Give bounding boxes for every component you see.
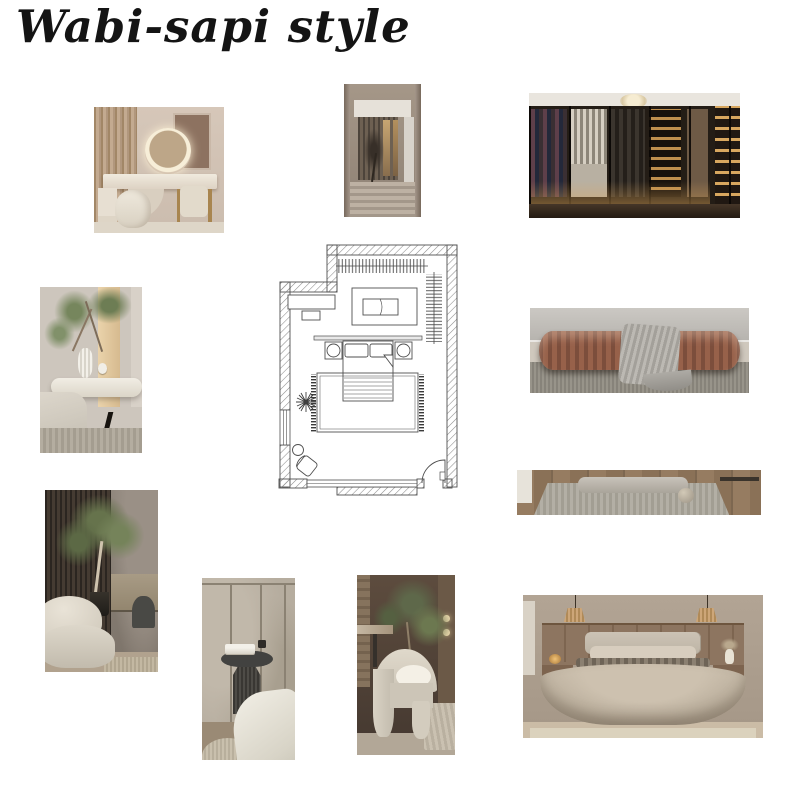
pendant-cord	[575, 595, 577, 609]
photo-olive-tree-corner[interactable]	[45, 490, 158, 672]
photo-vanity-table[interactable]	[94, 107, 224, 233]
doorway-white-column	[404, 117, 414, 185]
pendant-cord	[707, 595, 709, 609]
window-light	[517, 470, 532, 503]
moodboard-canvas: Wabi-sapi style	[0, 0, 800, 800]
panel-top-rail	[202, 583, 295, 585]
doorway-frame-right	[415, 84, 421, 217]
doorway-ceiling-band	[354, 100, 411, 117]
vanity-floor	[94, 222, 224, 233]
photo-floating-nightstand[interactable]	[40, 287, 142, 453]
vanity-round-mirror	[145, 128, 192, 173]
olive-canopy	[95, 512, 145, 559]
photo-linen-bed[interactable]	[523, 595, 763, 738]
light-rug	[530, 728, 756, 738]
plan-plant	[296, 392, 316, 412]
branch-foliage	[87, 287, 132, 324]
branch-foliage	[44, 317, 75, 350]
photo-floor-bolster[interactable]	[517, 470, 761, 515]
ball-cushion	[678, 488, 694, 503]
closet-floor	[529, 204, 740, 218]
vanity-pouf	[115, 190, 151, 228]
photo-terracotta-bench[interactable]	[530, 308, 749, 393]
table-leg	[373, 634, 377, 666]
board-title: Wabi-sapi style	[16, 0, 411, 53]
plan-door	[422, 460, 445, 483]
plan-armchair	[293, 445, 319, 478]
bedroom-floorplan[interactable]	[276, 238, 462, 500]
photo-fluted-side-table[interactable]	[202, 578, 295, 760]
vanity-brass-leg	[208, 189, 211, 224]
amber-table-lamp	[549, 654, 561, 664]
stone-table-edge	[357, 625, 393, 634]
white-vase	[725, 649, 735, 663]
floorplan-drawing	[276, 238, 462, 500]
long-bolster-cushion	[578, 477, 688, 493]
doorway-lit-niche	[393, 120, 398, 176]
textured-rug	[40, 428, 142, 453]
stacked-books	[225, 644, 255, 654]
chair-rear-leg	[412, 701, 430, 739]
olive-canopy	[56, 519, 101, 566]
dark-cup	[258, 640, 266, 648]
vanity-stool	[180, 186, 209, 216]
window-light	[523, 601, 535, 675]
wood-bench-leg	[720, 477, 759, 481]
linen-duvet	[540, 664, 746, 725]
doorway-floor	[350, 182, 415, 217]
olive-canopy	[408, 604, 451, 647]
dark-side-table	[132, 596, 155, 629]
plan-furniture	[288, 288, 422, 401]
ribbed-vase	[78, 348, 93, 378]
photo-walk-in-wardrobe[interactable]	[529, 93, 740, 218]
pebble-chair-seat	[45, 625, 115, 669]
photo-hallway-portal[interactable]	[344, 84, 421, 217]
photo-sculptural-armchair[interactable]	[357, 575, 455, 755]
